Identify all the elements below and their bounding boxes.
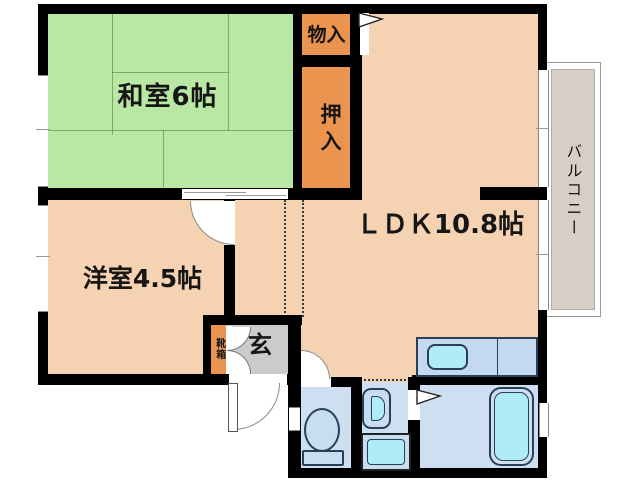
room-ldk-upper xyxy=(358,9,545,199)
kitchen-counter-divider xyxy=(497,339,498,375)
boundary-dashed xyxy=(302,200,304,317)
window-tick xyxy=(536,254,549,255)
front-door-leaf xyxy=(228,383,238,432)
wall xyxy=(293,55,362,67)
window xyxy=(538,200,549,310)
window-tick xyxy=(36,129,50,130)
room-label-monoire: 物入 xyxy=(299,26,354,46)
window-toilet-vent xyxy=(289,407,300,431)
toilet xyxy=(304,408,340,452)
tatami-line xyxy=(43,130,298,131)
room-label-washitsu: 和室6帖 xyxy=(95,84,240,111)
window xyxy=(38,205,48,312)
wall xyxy=(38,4,547,14)
room-label-kutsubako: 靴箱 xyxy=(211,327,226,371)
wall xyxy=(203,315,211,385)
room-label-ldk: ＬＤＫ10.8帖 xyxy=(350,212,530,239)
door-open-flag-icon xyxy=(416,388,442,407)
sliding-door-washitsu xyxy=(182,189,288,199)
room-label-yoshitsu: 洋室4.5帖 xyxy=(60,266,225,292)
door-open-flag-icon xyxy=(358,11,384,30)
kitchen-sink xyxy=(427,344,468,370)
boundary-dashed xyxy=(360,379,410,381)
room-label-balcony: バルコニー xyxy=(559,100,585,280)
window xyxy=(38,75,48,187)
tatami-line xyxy=(112,72,229,73)
wall xyxy=(288,315,301,478)
toilet-tank xyxy=(302,450,344,466)
room-label-oshiire: 押入 xyxy=(316,88,344,172)
window-tick xyxy=(36,256,50,257)
vanity-sink xyxy=(362,388,391,429)
tatami-line xyxy=(228,9,229,130)
window-bathroom xyxy=(539,403,549,437)
floor-plan: 和室6帖 物入 押入 ＬＤＫ10.8帖 洋室4.5帖 玄 靴箱 バルコニー xyxy=(0,0,640,480)
wall xyxy=(290,188,362,200)
kitchen-counter xyxy=(416,337,538,377)
boundary-dashed xyxy=(284,200,286,317)
bathtub xyxy=(489,387,534,466)
window-tick xyxy=(536,128,549,129)
room-label-genkan: 玄 xyxy=(244,333,276,358)
tatami-line xyxy=(163,130,164,194)
washing-machine xyxy=(361,433,411,471)
door-arc-entrance xyxy=(233,383,280,430)
wall xyxy=(480,187,547,200)
